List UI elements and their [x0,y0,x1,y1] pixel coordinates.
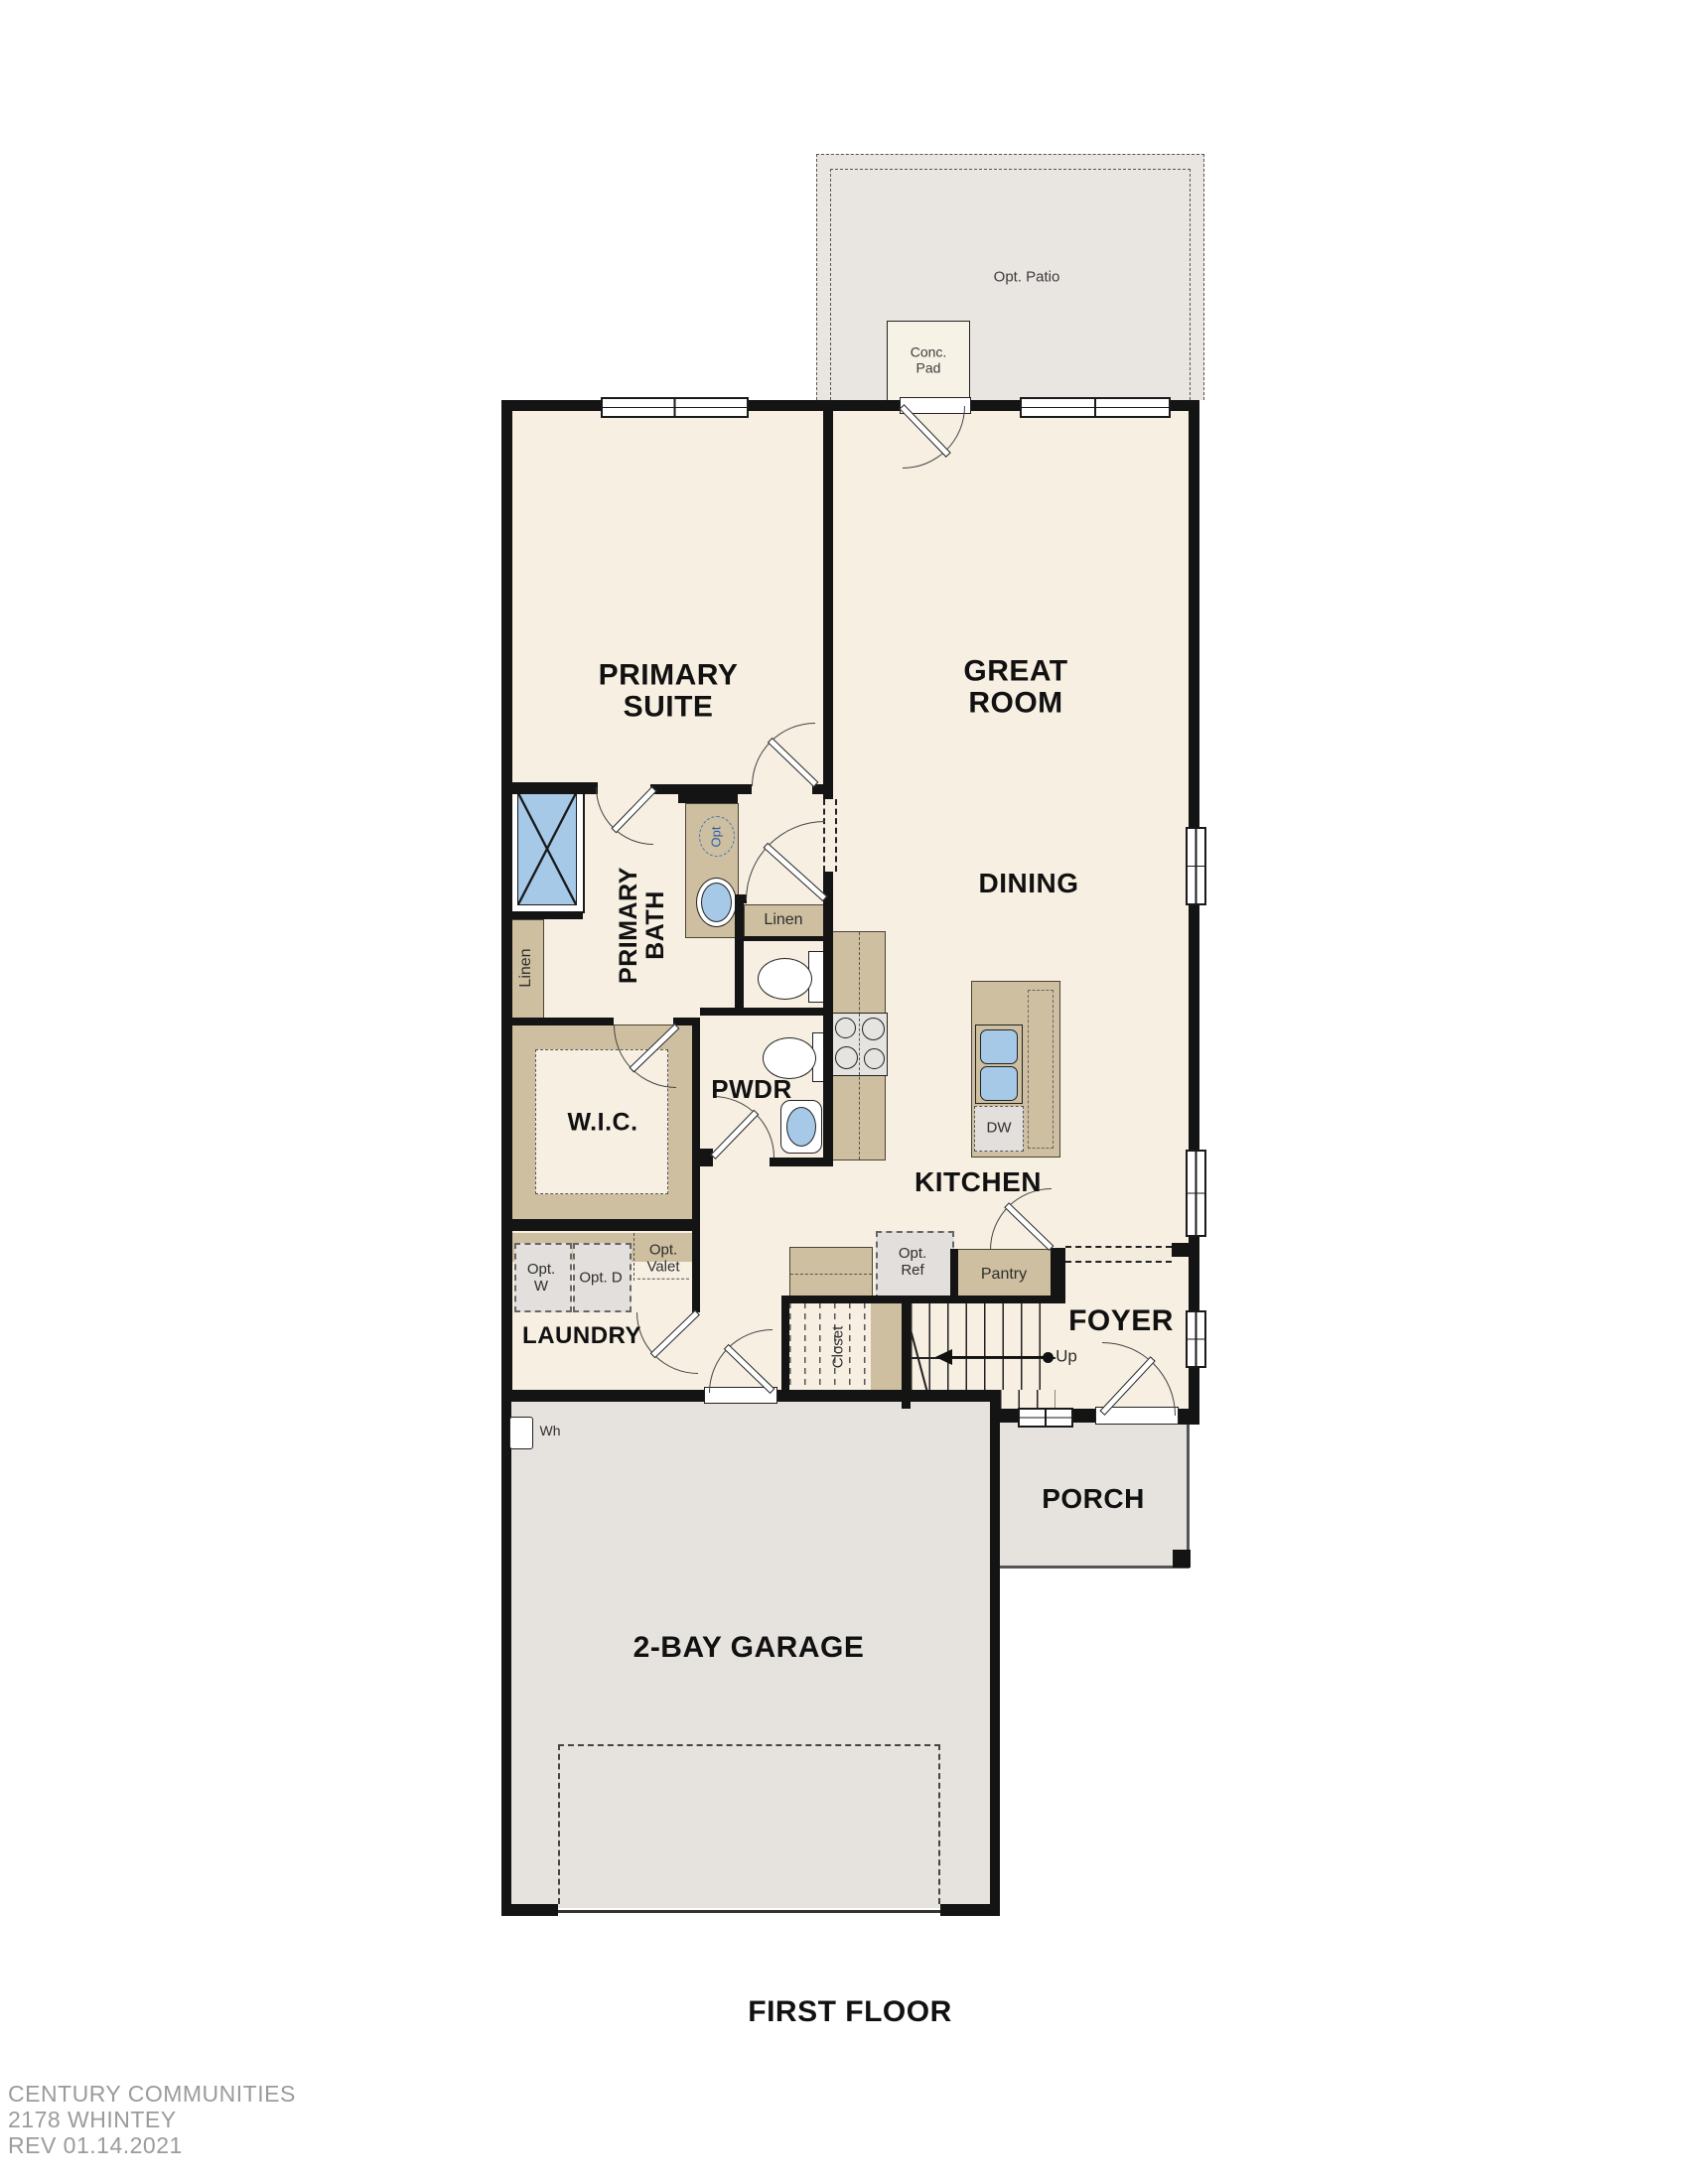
room-label-kitchen: KITCHEN [914,1167,1042,1197]
optional-valet-divider [633,1233,634,1281]
wall [501,911,583,919]
wall [902,1303,911,1409]
room-label-primary-bath: PRIMARY BATH [616,861,669,990]
optional-dryer-label: Opt. D [578,1271,624,1288]
wall [678,789,738,803]
water-heater-box [509,1417,533,1449]
wall [940,1904,1000,1916]
room-label-porch: PORCH [1042,1484,1145,1514]
window [1186,1150,1206,1237]
wall [990,1390,1000,1916]
water-heater-label: Wh [540,1424,561,1439]
wall [501,1390,708,1402]
room-label-pwdr: PWDR [711,1075,791,1103]
optional-washer-label: Opt. W [518,1262,564,1296]
powder-sink-fixture [780,1100,822,1154]
room-label-great-room: GREAT ROOM [951,656,1080,721]
island-sink-fixture [975,1024,1023,1104]
wall [744,936,824,941]
wall [770,1158,833,1166]
window [1186,827,1206,905]
up-arrow-line [950,1356,1045,1358]
room-label-garage: 2-BAY GARAGE [633,1632,865,1664]
patio-label: Opt. Patio [994,270,1060,287]
wall [772,1390,1000,1402]
footer-brand: CENTURY COMMUNITIES [8,2081,296,2107]
footer-revision: REV 01.14.2021 [8,2132,183,2158]
window [1018,1408,1073,1428]
up-label: Up [1055,1346,1077,1365]
understair-closet-shelf [871,1303,902,1390]
room-label-primary-suite: PRIMARY SUITE [589,660,748,725]
wall [501,1018,614,1025]
wall [1051,1248,1065,1303]
room-label-wic: W.I.C. [567,1110,637,1137]
floor-plan: Opt. Patio Conc. Pad Linen Opt Linen [0,0,1688,2184]
wall [950,1249,958,1300]
wall [1189,400,1199,1423]
closet-label: Closet [831,1326,848,1369]
wall [1172,1243,1190,1257]
optional-valet-label: Opt. Valet [637,1243,689,1280]
wall [823,872,833,1166]
wall [700,1008,833,1016]
wall [990,1409,1020,1423]
wall [735,894,744,1016]
hall-cabinet [789,1247,873,1299]
linen-left-label: Linen [517,948,535,987]
linen-right-label: Linen [764,911,802,929]
garage-door-threshold [558,1910,940,1913]
wall [781,1296,1065,1303]
sheet-title: FIRST FLOOR [748,1996,951,2028]
wall [692,1231,700,1312]
footer-plan-name: 2178 WHINTEY [8,2107,177,2132]
porch-post [1173,1550,1191,1568]
up-arrow-head [935,1349,952,1365]
cased-opening [1065,1246,1172,1263]
cooktop-fixture [830,1013,888,1076]
window [1186,1310,1206,1368]
staircase [911,1303,1055,1390]
room-label-foyer: FOYER [1068,1305,1174,1337]
wall [501,782,598,794]
concrete-pad-label: Conc. Pad [903,344,954,375]
window [1020,397,1171,418]
room-label-laundry: LAUNDRY [522,1323,641,1349]
porch-edge-right [1187,1423,1190,1568]
optional-refrigerator-label: Opt. Ref [890,1246,935,1280]
wall [501,1219,700,1231]
pantry-label: Pantry [981,1266,1027,1284]
window [601,397,749,418]
wall [823,400,833,799]
garage-door-outline [558,1744,940,1904]
porch-edge-bottom [1000,1566,1190,1569]
wall [501,400,512,1402]
wall [700,1149,713,1166]
staircase-lower [1000,1390,1055,1409]
optional-sink-label: Opt [710,827,725,848]
wall [501,1402,511,1916]
shower-fixture [509,784,585,913]
wall [692,1018,700,1231]
wall [501,1904,558,1916]
room-label-dining: DINING [979,869,1079,898]
vanity-sink-fixture [696,878,737,927]
dishwasher-label: DW [987,1121,1012,1138]
wall [781,1303,789,1390]
optional-opening [823,799,837,872]
wall [812,784,833,794]
